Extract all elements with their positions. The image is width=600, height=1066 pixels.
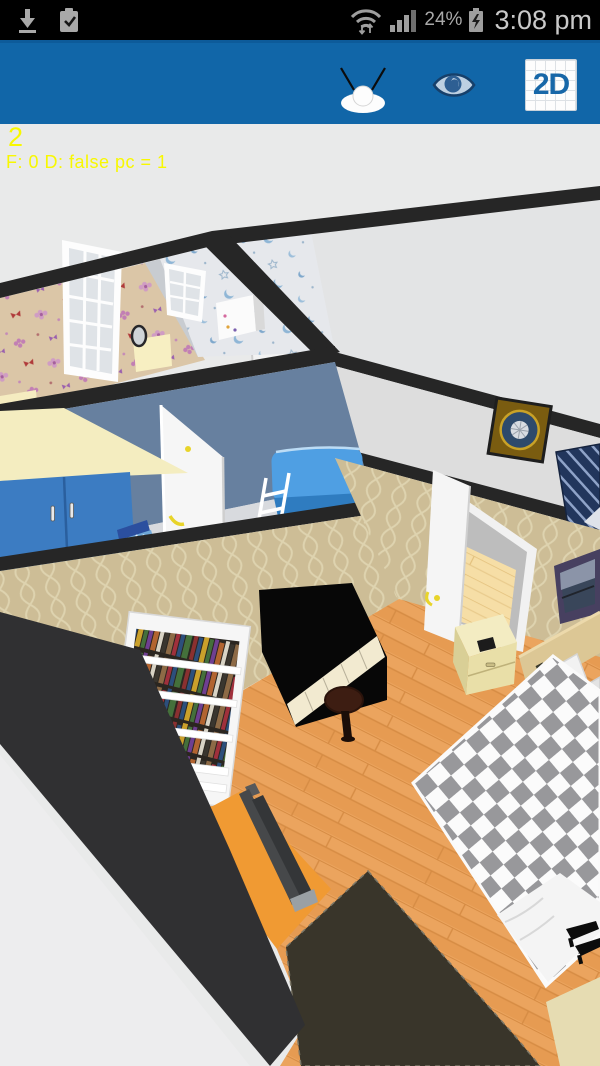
switch-to-2d-button[interactable]: 2D [525, 59, 577, 111]
signal-strength-icon [389, 6, 419, 34]
status-bar: 24% 3:08 pm [0, 0, 600, 40]
door-handle [434, 595, 440, 601]
gold-wall-clock[interactable] [488, 398, 551, 462]
download-icon [14, 6, 40, 34]
observer-camera-icon [327, 56, 399, 114]
clock-text: 3:08 pm [494, 5, 592, 36]
nursery-window[interactable] [164, 263, 206, 322]
notification-icons [0, 6, 82, 34]
battery-percent: 24% [424, 9, 462, 31]
wardrobe-handle [51, 506, 55, 521]
aerial-view-eye-button[interactable] [429, 68, 479, 102]
floorplan-3d-view[interactable] [0, 124, 600, 1066]
observer-camera-button[interactable] [327, 56, 399, 114]
clipboard-check-icon [56, 6, 82, 34]
debug-overlay: 2 F: 0 D: false pc = 1 [6, 124, 168, 171]
wardrobe-handle [70, 503, 74, 518]
system-status-icons: 24% 3:08 pm [348, 4, 600, 36]
nightstand[interactable] [453, 614, 517, 695]
door-handle [185, 446, 191, 452]
debug-line-2: F: 0 D: false pc = 1 [6, 153, 168, 171]
eye-icon [429, 68, 479, 102]
battery-charging-icon [467, 5, 485, 35]
app-toolbar: 2D [0, 40, 600, 127]
round-mirror[interactable] [132, 326, 146, 346]
app-screen: { "status_bar": { "time": "3:08 pm", "ba… [0, 0, 600, 1066]
wifi-icon [348, 4, 384, 36]
debug-line-1: 2 [8, 124, 168, 151]
